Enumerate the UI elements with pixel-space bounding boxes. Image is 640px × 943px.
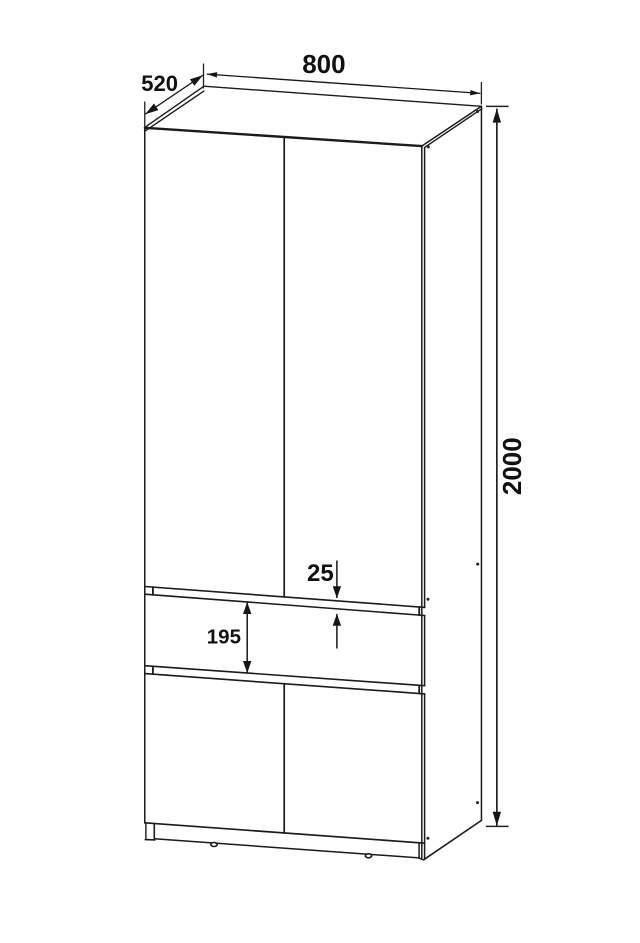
- svg-text:2000: 2000: [497, 437, 527, 495]
- svg-text:195: 195: [207, 626, 241, 649]
- svg-text:25: 25: [307, 560, 334, 587]
- svg-text:520: 520: [141, 71, 178, 96]
- svg-text:800: 800: [302, 49, 345, 79]
